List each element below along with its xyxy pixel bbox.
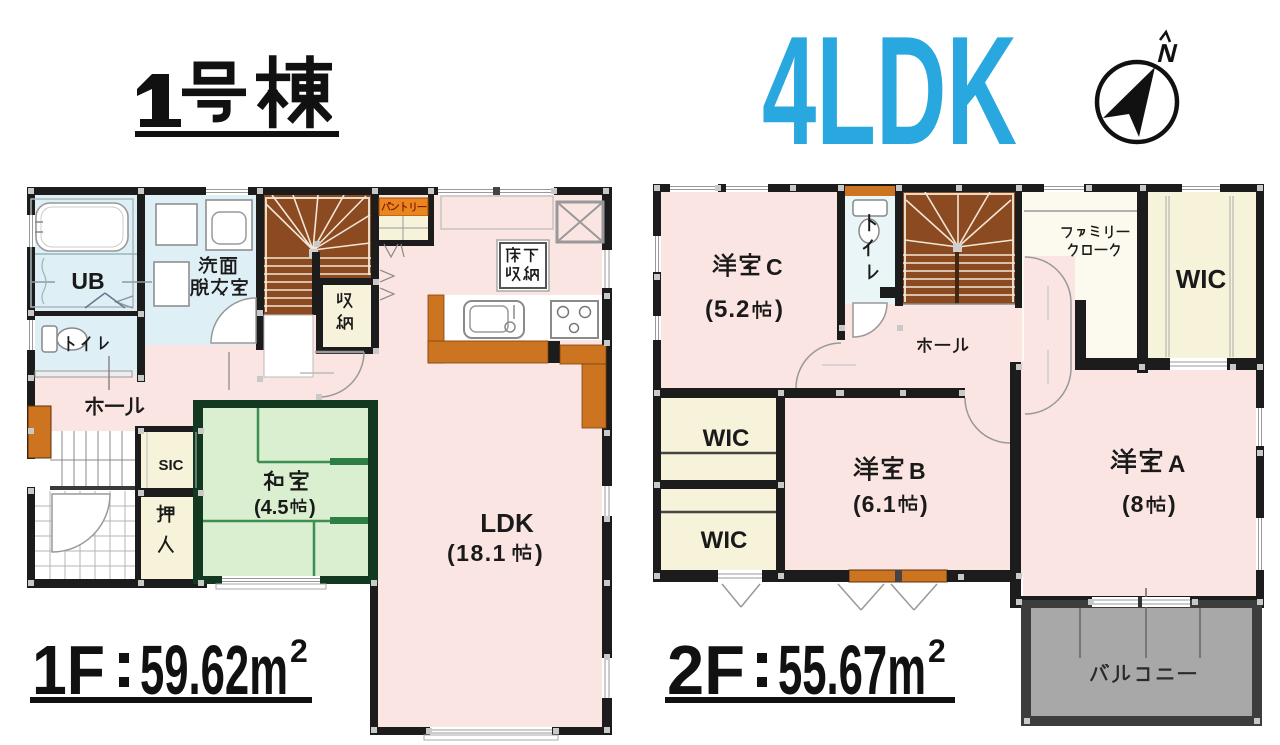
svg-text:UB: UB [71,268,104,294]
svg-text:): ) [1168,491,1176,517]
svg-text:2: 2 [290,633,308,669]
svg-text:4LDK: 4LDK [762,4,1017,177]
svg-text:2: 2 [928,633,946,669]
svg-text:B: B [909,458,926,484]
svg-text:SIC: SIC [158,457,183,474]
svg-text:(5.2: (5.2 [705,296,750,323]
svg-text:): ) [775,296,783,323]
svg-text:WIC: WIC [703,425,750,452]
svg-text:(8: (8 [1122,491,1144,517]
svg-text:(6.1: (6.1 [853,491,897,517]
svg-text:): ) [920,491,928,517]
svg-text:(18.1: (18.1 [447,540,507,566]
svg-text:): ) [309,497,316,519]
svg-text:LDK: LDK [480,508,534,538]
svg-text:): ) [535,540,543,566]
svg-text:WIC: WIC [1176,264,1227,294]
svg-text:C: C [766,254,783,280]
svg-text:(4.5: (4.5 [254,497,288,519]
svg-text:WIC: WIC [701,527,748,554]
svg-text:A: A [1168,451,1185,478]
